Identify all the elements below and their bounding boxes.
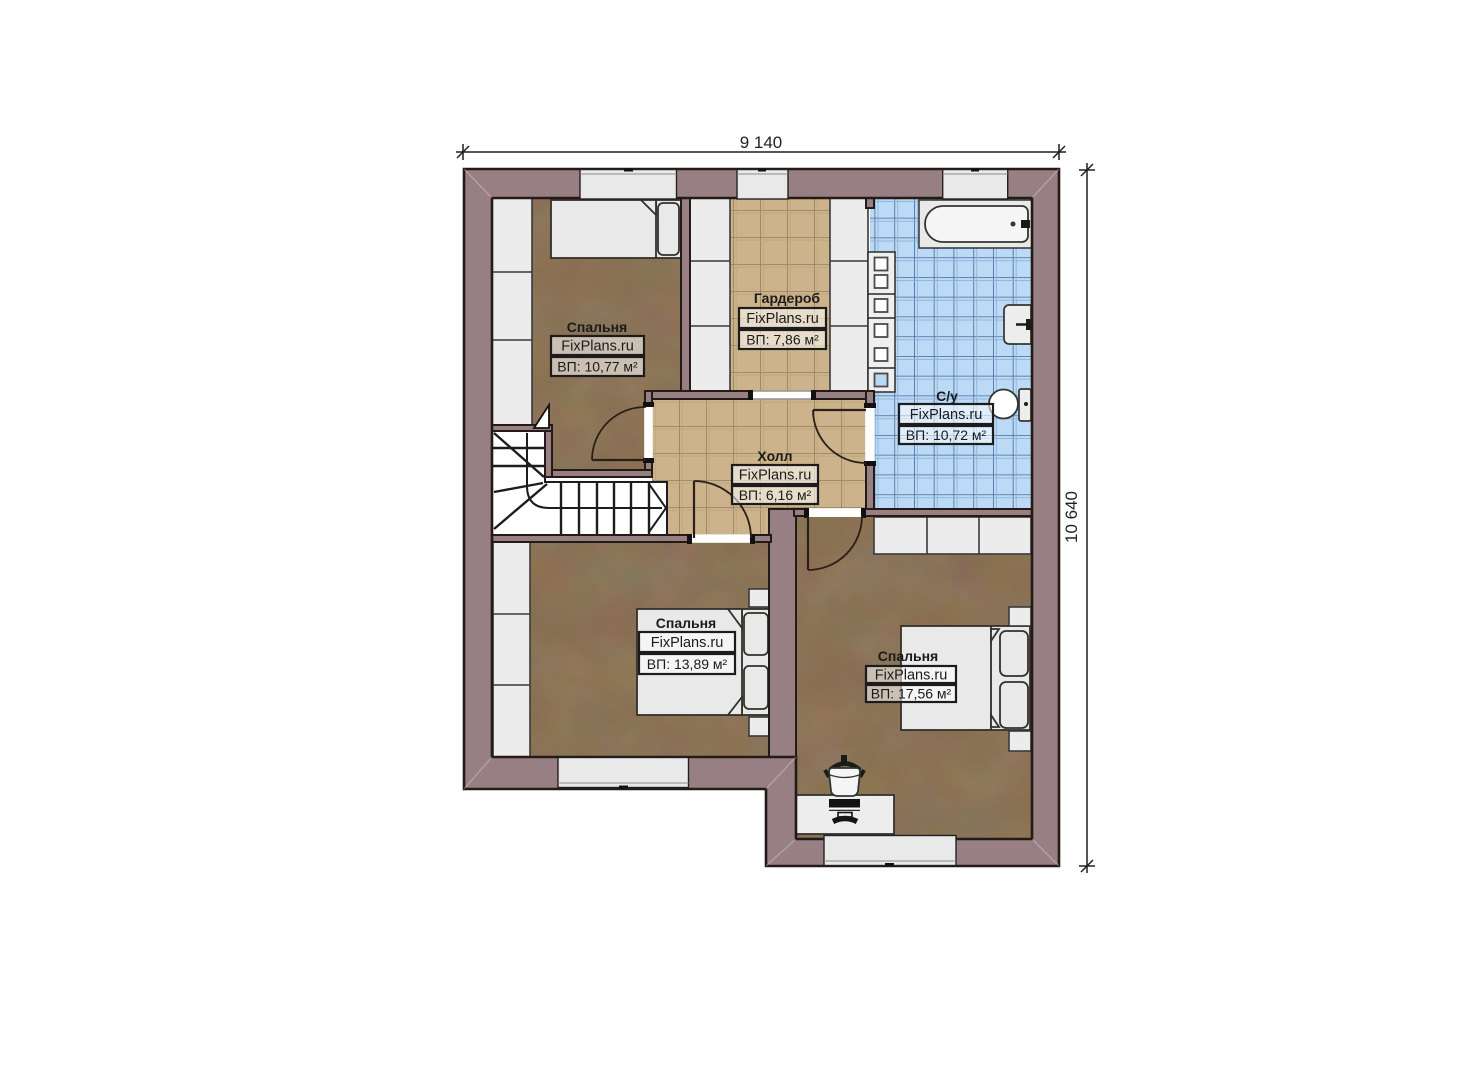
svg-text:С/у: С/у [936, 388, 958, 404]
svg-text:FixPlans.ru: FixPlans.ru [746, 311, 819, 327]
svg-text:ВП: 17,56 м²: ВП: 17,56 м² [871, 686, 952, 702]
svg-text:10 640: 10 640 [1062, 491, 1081, 543]
svg-text:FixPlans.ru: FixPlans.ru [651, 635, 724, 651]
svg-text:ВП: 10,77 м²: ВП: 10,77 м² [557, 359, 638, 375]
svg-text:9 140: 9 140 [740, 133, 783, 152]
svg-text:ВП: 10,72 м²: ВП: 10,72 м² [906, 427, 987, 443]
svg-text:Холл: Холл [757, 448, 792, 464]
svg-text:FixPlans.ru: FixPlans.ru [739, 468, 812, 484]
svg-text:Гардероб: Гардероб [754, 290, 821, 306]
svg-text:FixPlans.ru: FixPlans.ru [910, 407, 983, 423]
svg-text:Спальня: Спальня [656, 615, 716, 631]
svg-text:ВП: 13,89 м²: ВП: 13,89 м² [647, 656, 728, 672]
svg-text:Спальня: Спальня [567, 319, 627, 335]
svg-text:FixPlans.ru: FixPlans.ru [875, 668, 948, 684]
svg-text:ВП: 6,16 м²: ВП: 6,16 м² [739, 487, 812, 503]
svg-text:FixPlans.ru: FixPlans.ru [561, 339, 634, 355]
svg-text:ВП: 7,86 м²: ВП: 7,86 м² [746, 332, 819, 348]
svg-text:Спальня: Спальня [878, 648, 938, 664]
